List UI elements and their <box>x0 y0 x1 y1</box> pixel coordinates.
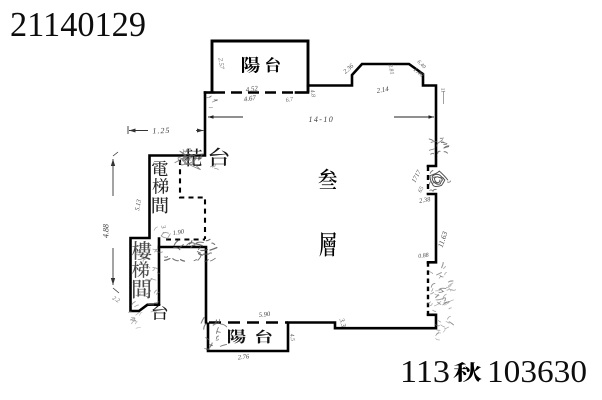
svg-text:5.90: 5.90 <box>258 311 271 319</box>
svg-text:4.5: 4.5 <box>288 333 296 342</box>
svg-text:2.76: 2.76 <box>237 353 250 361</box>
svg-text:14-10: 14-10 <box>309 115 335 124</box>
svg-text:113: 113 <box>400 353 450 389</box>
svg-text:103630: 103630 <box>487 353 587 389</box>
svg-text:4.88: 4.88 <box>102 224 111 238</box>
svg-text:1.25: 1.25 <box>152 126 170 136</box>
svg-text:4.8: 4.8 <box>309 89 317 98</box>
svg-text:21140129: 21140129 <box>10 5 146 44</box>
